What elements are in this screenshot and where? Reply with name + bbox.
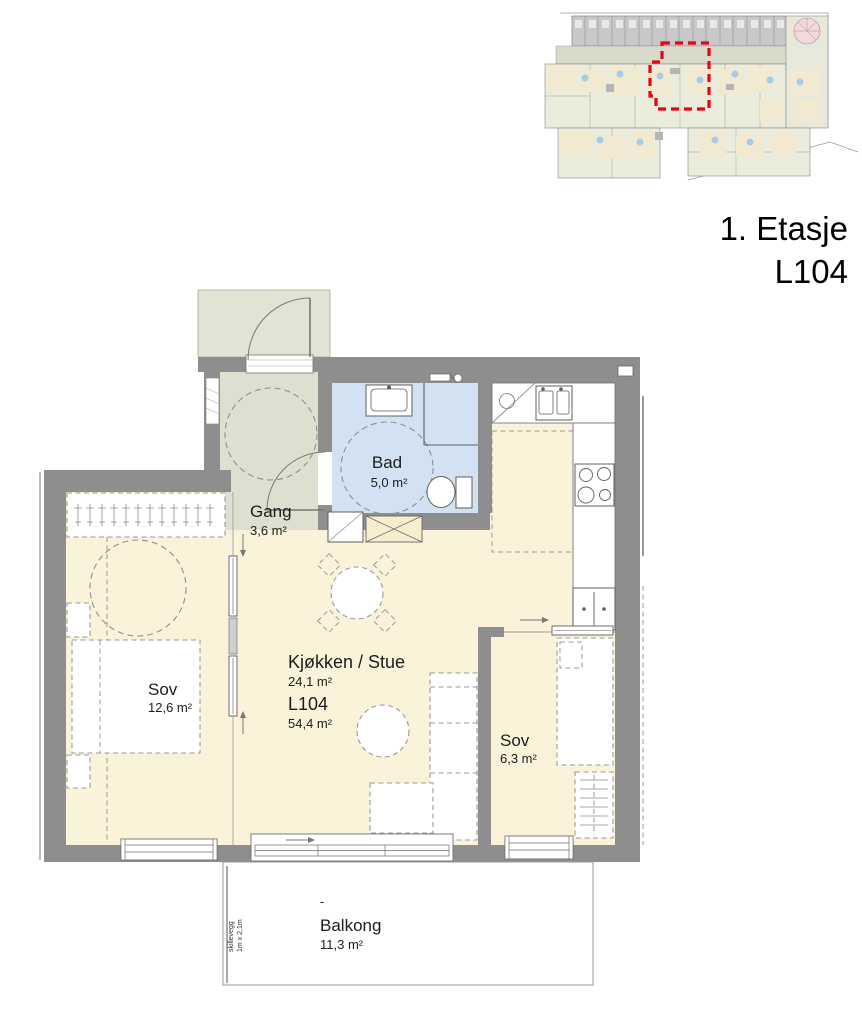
unit-area: 54,4 m²	[288, 716, 333, 731]
balcony-label: Balkong	[320, 916, 381, 935]
toilet	[427, 477, 472, 509]
living-label: Kjøkken / Stue	[288, 652, 405, 672]
floor-title: 1. Etasje	[720, 210, 848, 247]
balcony-dash: -	[320, 894, 324, 909]
partition-note-2: 1m x 2,1m	[237, 919, 244, 952]
floorplan-page: 1. Etasje L104	[0, 0, 862, 1024]
stair-icon	[794, 18, 820, 44]
stove	[575, 464, 614, 506]
partition-note-1: skillevegg	[228, 921, 235, 952]
hall-cabinet	[206, 378, 219, 424]
bath-label: Bad	[372, 453, 402, 472]
bath-cabinet	[328, 512, 363, 542]
drawing-title: 1. Etasje L104	[720, 210, 848, 290]
window-bedroom1	[121, 839, 217, 860]
unit-label: L104	[288, 694, 328, 714]
hall-label: Gang	[250, 502, 292, 521]
bath-sink	[366, 385, 412, 416]
bedroom2-label: Sov	[500, 731, 530, 750]
living-area: 24,1 m²	[288, 674, 333, 689]
fridge	[573, 588, 615, 630]
balcony-sliding-door	[251, 834, 453, 861]
nightstand	[67, 603, 90, 637]
floorplan: Gang 3,6 m² Bad 5,0 m² Sov 12,6 m² Kjøkk…	[40, 290, 643, 985]
unit-title: L104	[775, 253, 848, 290]
coffee-table	[357, 705, 409, 757]
bedroom1-wardrobe	[67, 493, 225, 537]
bedroom2-area: 6,3 m²	[500, 751, 538, 766]
overview-map	[545, 13, 858, 180]
bedroom1-area: 12,6 m²	[148, 700, 193, 715]
window-bedroom2	[505, 836, 573, 859]
wall-vent	[618, 366, 633, 376]
hall-area: 3,6 m²	[250, 523, 288, 538]
balcony-area: 11,3 m²	[320, 937, 364, 952]
washing-machine	[366, 516, 422, 542]
bath-area: 5,0 m²	[371, 475, 409, 490]
corridor	[556, 46, 798, 64]
bedroom1-label: Sov	[148, 680, 178, 699]
nightstand	[67, 755, 90, 788]
kitchen-floor	[492, 423, 573, 513]
bedroom2-bed	[557, 638, 613, 765]
balcony	[223, 862, 593, 985]
kitchen-sink	[536, 386, 572, 420]
bedroom2-wardrobe	[575, 772, 613, 838]
bedroom1-bed	[72, 640, 200, 753]
